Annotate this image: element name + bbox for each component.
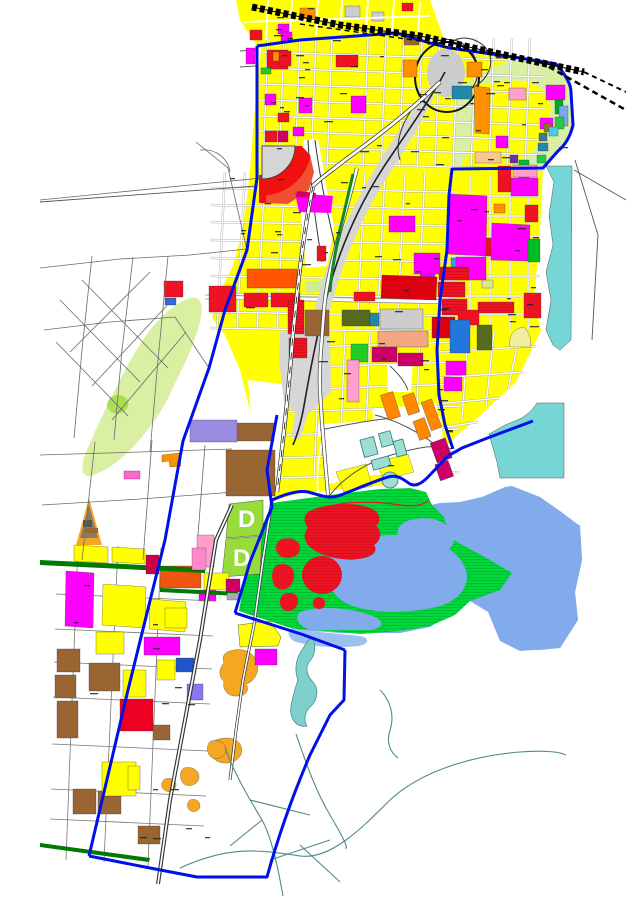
svg-text:D: D [238, 506, 255, 533]
